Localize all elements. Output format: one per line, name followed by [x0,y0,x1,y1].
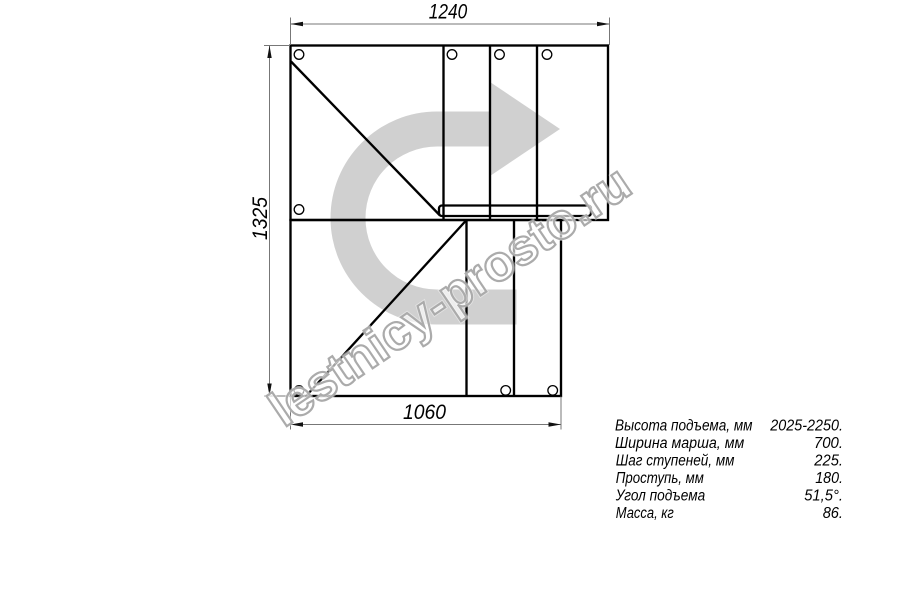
svg-text:Масса, кг: Масса, кг [616,505,674,522]
svg-text:Высота подъема, мм: Высота подъема, мм [615,417,753,434]
svg-text:1240: 1240 [429,0,468,24]
svg-text:86.: 86. [823,505,843,522]
svg-text:2025-2250.: 2025-2250. [769,417,843,434]
svg-text:1060: 1060 [403,400,446,424]
svg-text:Угол подъема: Угол подъема [615,487,705,504]
svg-text:180.: 180. [815,470,843,487]
svg-text:Шаг ступеней, мм: Шаг ступеней, мм [616,452,735,469]
svg-text:225.: 225. [813,452,843,469]
svg-text:1325: 1325 [248,196,272,240]
svg-text:Проступь, мм: Проступь, мм [616,470,704,487]
svg-text:Ширина марша, мм: Ширина марша, мм [615,435,745,452]
svg-text:51,5°.: 51,5°. [804,487,843,504]
svg-text:700.: 700. [814,435,843,452]
